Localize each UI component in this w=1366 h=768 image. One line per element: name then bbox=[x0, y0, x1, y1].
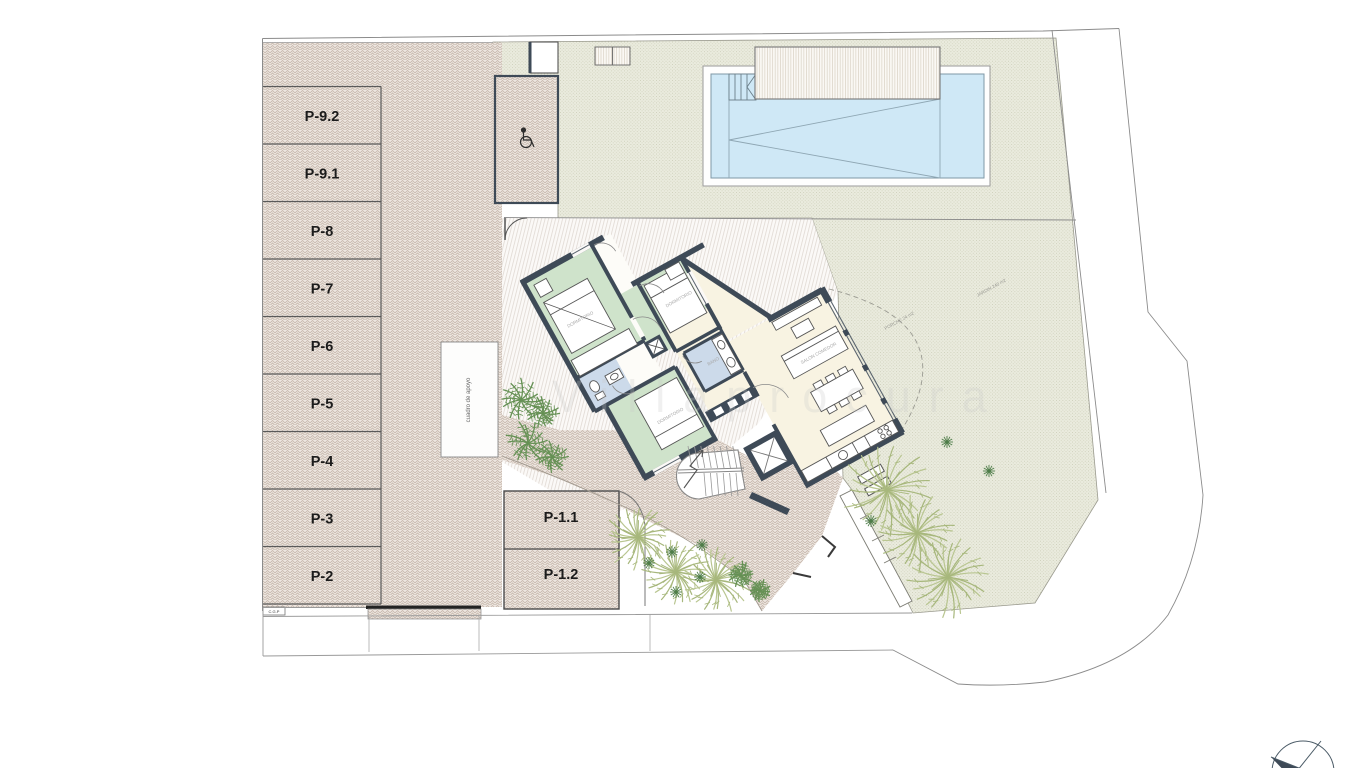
svg-text:P-2: P-2 bbox=[311, 569, 334, 585]
svg-text:P-1.1: P-1.1 bbox=[544, 510, 579, 526]
svg-text:C.G.P: C.G.P bbox=[269, 609, 280, 614]
svg-text:Villaprocura: Villaprocura bbox=[552, 371, 1005, 422]
svg-text:P-4: P-4 bbox=[311, 454, 334, 470]
svg-text:P-6: P-6 bbox=[311, 339, 334, 355]
svg-text:P-3: P-3 bbox=[311, 511, 334, 527]
svg-text:P-9.2: P-9.2 bbox=[305, 109, 340, 125]
svg-text:P-9.1: P-9.1 bbox=[305, 166, 340, 182]
svg-text:P-7: P-7 bbox=[311, 281, 334, 297]
svg-text:P-5: P-5 bbox=[311, 396, 334, 412]
svg-text:cuadro de apoyo: cuadro de apoyo bbox=[466, 377, 472, 422]
svg-text:P-1.2: P-1.2 bbox=[544, 567, 579, 583]
svg-text:P-8: P-8 bbox=[311, 224, 334, 240]
